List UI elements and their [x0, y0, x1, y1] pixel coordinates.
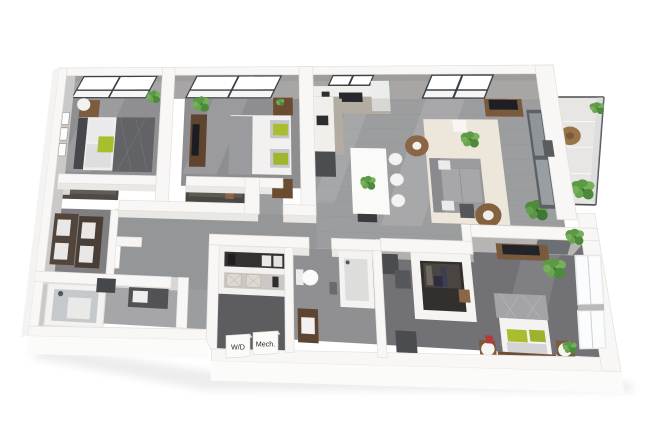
svg-text:Mech.: Mech.: [256, 340, 276, 349]
svg-text:W/D: W/D: [231, 343, 245, 352]
